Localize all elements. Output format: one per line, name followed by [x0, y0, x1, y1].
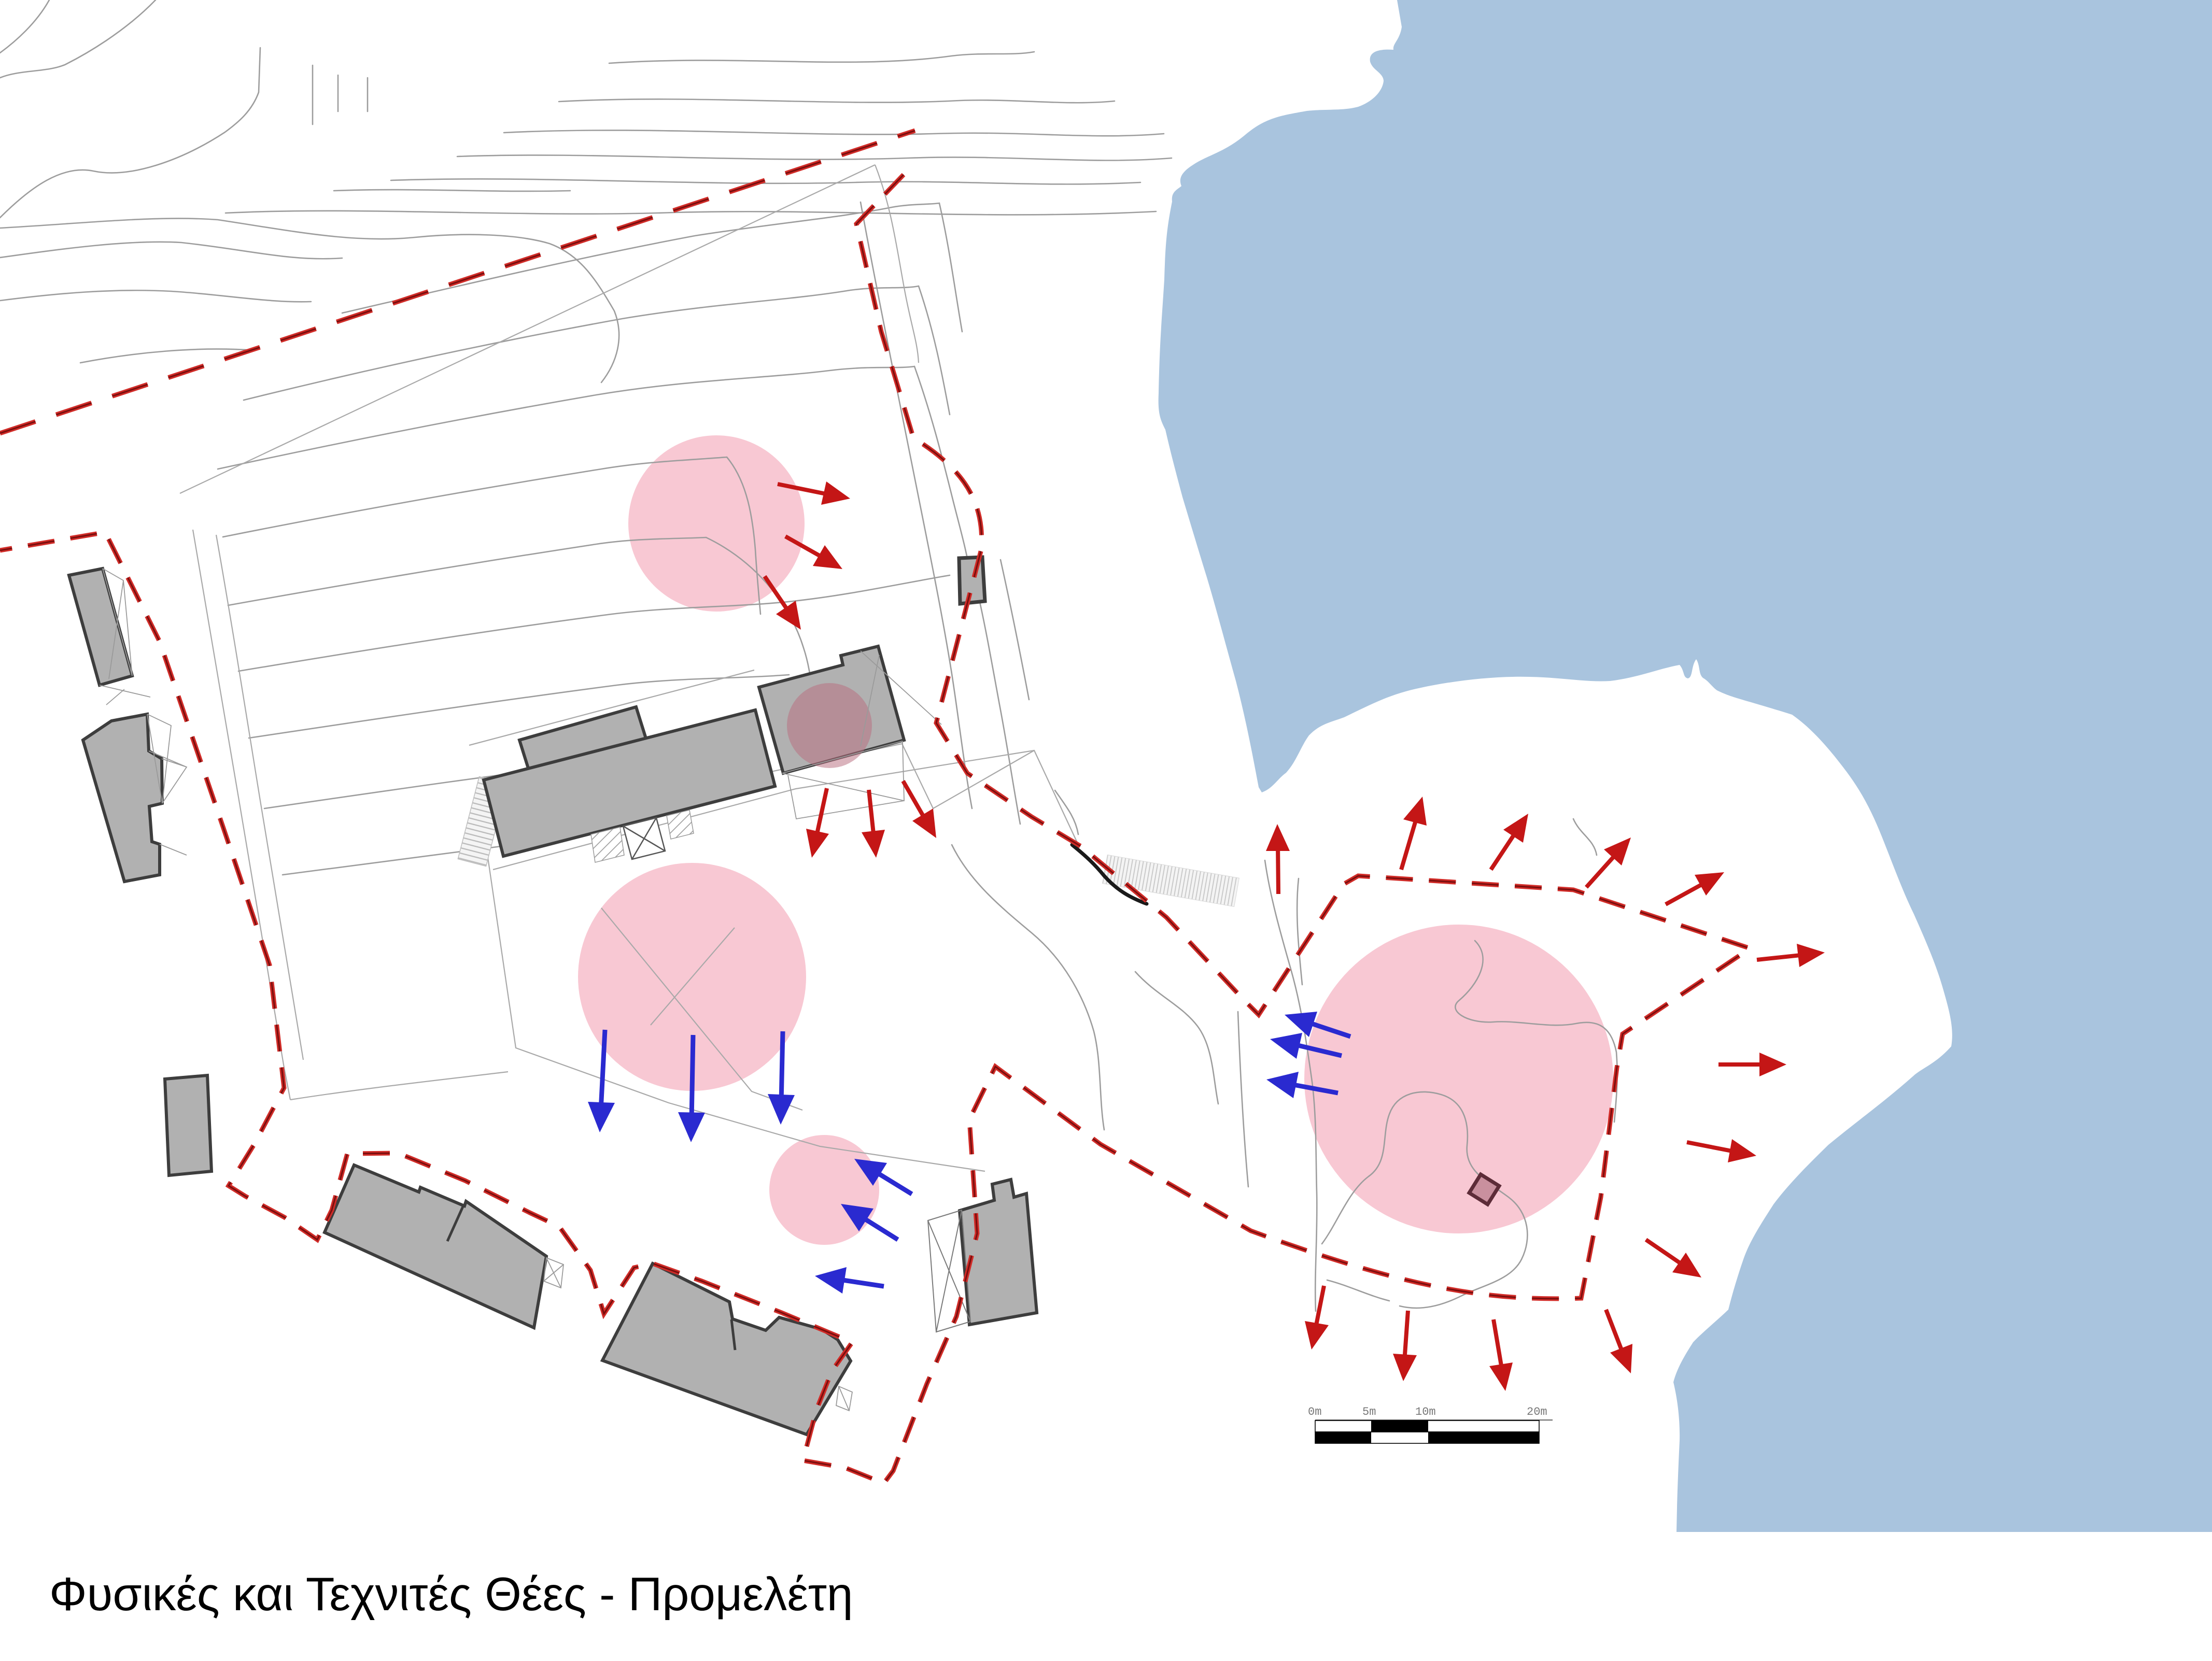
svg-text:10m: 10m — [1415, 1406, 1436, 1418]
svg-text:5m: 5m — [1362, 1406, 1376, 1418]
svg-text:0m: 0m — [1308, 1406, 1321, 1418]
svg-text:20m: 20m — [1527, 1406, 1547, 1418]
